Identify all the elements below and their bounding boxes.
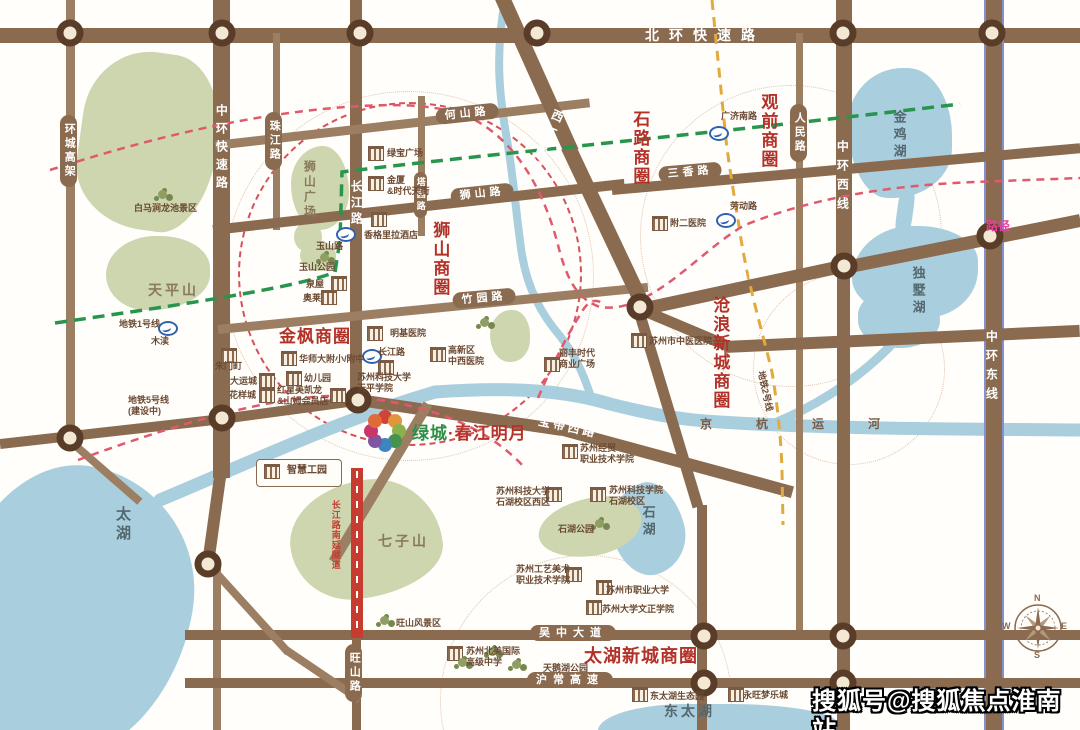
poi-mingji-hospital: 明基医院 xyxy=(390,328,426,339)
park-tianehu: 天鹅湖公园 xyxy=(543,663,588,674)
trees-icon xyxy=(320,253,329,262)
changjiang-south-tunnel xyxy=(351,468,363,638)
station-yushanlu: 玉山路 xyxy=(316,241,343,252)
poi-zhihui-park: 智慧工园 xyxy=(287,465,327,477)
poi-keji-tianping-college: 苏州科技大学 天平学院 xyxy=(357,372,411,394)
road-junction-dot xyxy=(209,20,236,47)
shishan-plaza: 狮山广场 xyxy=(302,160,316,220)
poi-wenzheng-college: 苏州大学文正学院 xyxy=(602,604,674,615)
metro-line-2 xyxy=(712,0,783,525)
building-icon xyxy=(281,351,297,366)
road-junction-dot xyxy=(347,20,374,47)
project-name: 绿城·春江明月 xyxy=(412,419,527,444)
road-junction-dot xyxy=(627,294,654,321)
road-label-changjiang-rd: 长江路 xyxy=(349,180,363,228)
road-label-huancheng-viaduct: 环城高架 xyxy=(60,115,77,187)
road-junction-dot xyxy=(830,20,857,47)
poi-huayangcheng: 花样城 xyxy=(229,390,256,401)
lake-dongtaihu: 东太湖 xyxy=(664,703,715,720)
compass-rose-icon xyxy=(1013,603,1063,653)
metro-line5-note: 地铁5号线 (建设中) xyxy=(128,395,169,417)
project-logo: 绿城·春江明月 xyxy=(362,408,527,454)
road-label-zhonghuan-west: 中环西线 xyxy=(835,140,849,216)
station-changjianglu: 长江路 xyxy=(378,347,405,358)
metro-icon xyxy=(716,213,736,228)
road-junction-dot xyxy=(830,623,857,650)
park-yushan: 玉山公园 xyxy=(299,262,335,273)
metro-icon xyxy=(336,227,356,242)
river-label-jinghang-canal: 京杭运河 xyxy=(700,417,924,431)
mt-qizi: 七子山 xyxy=(378,533,429,550)
building-icon xyxy=(321,290,337,305)
scenic-baimajian: 白马涧龙池景区 xyxy=(134,203,197,214)
poi-keda-shihu-west: 苏州科技大学 石湖校区西区 xyxy=(496,486,550,508)
road-junction-dot xyxy=(209,405,236,432)
poi-dayuncheng: 大运城 xyxy=(230,376,257,387)
road-label-zhonghuan-expwy: 中环快速路 xyxy=(214,104,228,194)
park-dongtaihu-eco: 东太湖生态园 xyxy=(650,691,704,702)
poi-aeon-mall: 永旺梦乐城 xyxy=(743,690,788,701)
lake-jinji: 金鸡湖 xyxy=(891,110,907,161)
building-icon xyxy=(590,487,606,502)
road-label-wangshan-rd: 旺山路 xyxy=(345,644,362,702)
building-icon xyxy=(728,687,744,702)
building-icon xyxy=(331,276,347,291)
building-icon xyxy=(652,216,668,231)
poi-quanwu: 泉屋 xyxy=(306,279,324,290)
watermark: 搜狐号@搜狐焦点淮南站 xyxy=(812,688,1080,730)
trees-icon xyxy=(158,190,167,199)
station-mudu: 木渎 xyxy=(151,336,169,347)
building-icon xyxy=(367,326,383,341)
bc-shilu: 石路商圈 xyxy=(629,110,649,186)
road-junction-dot xyxy=(57,425,84,452)
trees-icon xyxy=(480,318,489,327)
road-junction-dot xyxy=(195,551,222,578)
station-guangjinanlu: 广济南路 xyxy=(721,111,757,122)
building-icon xyxy=(586,600,602,615)
bc-taihu-xincheng: 太湖新城商圈 xyxy=(584,646,698,668)
road-junction-dot xyxy=(831,253,858,280)
poi-fuer-hospital: 附二医院 xyxy=(670,218,706,229)
metro-lines xyxy=(0,0,1080,730)
station-laodonglu: 劳动路 xyxy=(730,201,757,212)
artifact-path-text: 路径 xyxy=(986,219,1010,233)
mt-tianping: 天平山 xyxy=(148,282,199,299)
poi-gongyi-college: 苏州工艺美术 职业技术学院 xyxy=(516,564,570,586)
lake-taihu: 太湖 xyxy=(113,506,131,544)
poi-tcm-hospital: 苏州市中医医院 xyxy=(649,336,712,347)
poi-zhiye-univ: 苏州市职业大学 xyxy=(606,585,669,596)
location-map: 绿城·春江明月 北环快速路环城高架中环快速路珠江路何山路狮山路三香路竹园路塔园路… xyxy=(0,0,1080,730)
road-label-renmin-rd: 人民路 xyxy=(790,104,807,162)
metro-icon xyxy=(158,321,178,336)
building-icon xyxy=(286,371,302,386)
poi-lvbao-plaza: 绿宝广场 xyxy=(387,148,423,159)
building-icon xyxy=(330,388,346,403)
building-icon xyxy=(371,212,387,227)
building-icon xyxy=(259,388,275,403)
lake-shihu: 石湖 xyxy=(640,505,656,539)
poi-gaoxin-hospital: 高新区 中西医院 xyxy=(448,345,484,367)
road-junction-dot xyxy=(57,20,84,47)
project-name-title: ·春江明月 xyxy=(448,424,527,443)
lake-dushu: 独墅湖 xyxy=(910,266,926,317)
poi-jingmao-college: 苏州经贸 职业技术学院 xyxy=(580,443,634,465)
road-label-wuzhong-ave: 吴中大道 xyxy=(530,625,616,641)
bc-jinfeng: 金枫商圈 xyxy=(279,327,351,347)
bc-canglang: 沧浪新城商圈 xyxy=(709,296,729,410)
compass-w: W xyxy=(1002,621,1011,632)
building-icon xyxy=(368,146,384,161)
poi-shangrila-hotel: 香格里拉酒店 xyxy=(364,230,418,241)
metro-line1-note: 地铁1号线 xyxy=(119,319,160,330)
road-junction-dot xyxy=(979,20,1006,47)
road-label-zhujiang-rd: 珠江路 xyxy=(265,112,282,170)
poi-hongxing-sams: 红星美凯龙 &山姆会员店 xyxy=(277,385,329,407)
park-shihu: 石湖公园 xyxy=(558,524,594,535)
logo-flower-icon xyxy=(362,408,408,454)
building-icon xyxy=(631,333,647,348)
bc-guanqian: 观前商圈 xyxy=(757,93,777,169)
poi-beimei-school: 苏州北美国际 高级中学 xyxy=(466,646,520,668)
road-label-huchang-expwy: 沪常高速 xyxy=(527,672,613,688)
poi-jinsha-tianjie: 金厦 &时代天街 xyxy=(387,175,430,197)
metro-icon xyxy=(709,126,729,141)
building-icon xyxy=(544,357,560,372)
building-icon xyxy=(264,464,280,479)
bc-shishan: 狮山商圈 xyxy=(429,221,449,297)
trees-icon xyxy=(380,616,389,625)
poi-keda-shihu: 苏州科技学院 石湖校区 xyxy=(609,485,663,507)
building-icon xyxy=(368,176,384,191)
building-icon xyxy=(430,347,446,362)
poi-huashida-school: 华师大附小/附中 xyxy=(299,354,365,365)
road-label-beihuan-expwy: 北环快速路 xyxy=(645,27,765,44)
poi-kindergarten: 幼儿园 xyxy=(304,373,331,384)
road-label-zhonghuan-east: 中环东线 xyxy=(984,330,998,406)
building-icon xyxy=(632,687,648,702)
tunnel-label: 长江路南延隧道 xyxy=(330,500,341,570)
trees-icon xyxy=(595,519,604,528)
poi-zhumending: 朱门町 xyxy=(215,361,242,372)
project-name-brand: 绿城 xyxy=(412,424,448,443)
poi-lifeng-plaza: 丽丰时代 商业广场 xyxy=(559,348,595,370)
scenic-wangshan: 旺山风景区 xyxy=(396,618,441,629)
building-icon xyxy=(259,373,275,388)
building-icon xyxy=(562,444,578,459)
road-junction-dot xyxy=(524,20,551,47)
poi-aolai: 奥莱 xyxy=(303,293,321,304)
